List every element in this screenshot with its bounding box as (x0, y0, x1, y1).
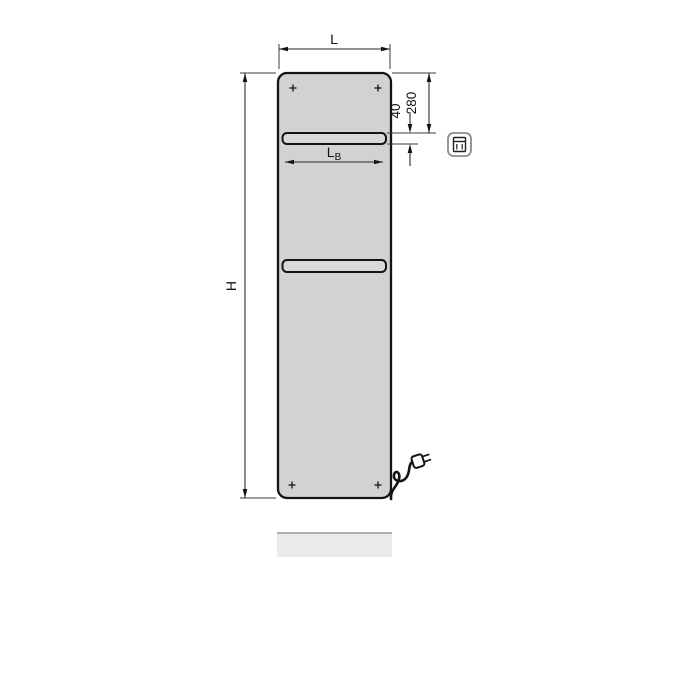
radiator-dimension-drawing: L H 280 40 (0, 0, 700, 700)
dimension-height: H (223, 73, 276, 498)
dimension-label-top-offset: 280 (404, 92, 419, 115)
dimension-width: L (279, 31, 390, 69)
towel-bar-upper (283, 133, 387, 144)
electric-control-unit-icon (448, 133, 471, 156)
power-cord (391, 451, 432, 499)
dimension-label-bar-thickness: 40 (388, 103, 403, 118)
drawing-canvas: L H 280 40 (0, 0, 700, 700)
dimension-label-height: H (223, 281, 239, 291)
dimension-label-width: L (330, 31, 338, 47)
towel-bar-lower (283, 260, 387, 272)
power-plug-icon (411, 451, 432, 468)
floor-shadow (277, 533, 392, 557)
